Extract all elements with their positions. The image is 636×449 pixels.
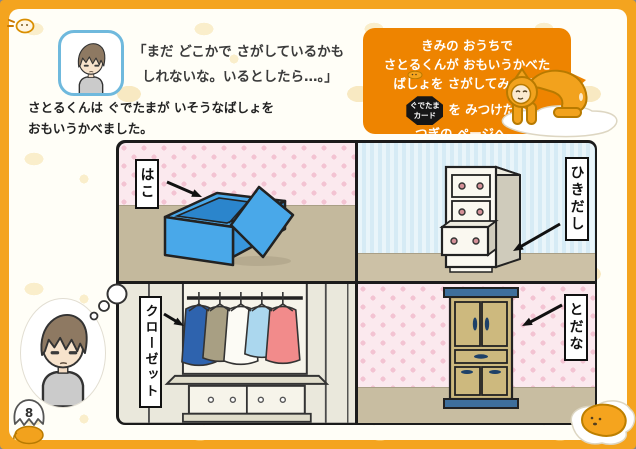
imagination-panel: はこ <box>116 140 597 425</box>
quadrant-drawers: ひきだし <box>358 143 595 282</box>
label-hikidashi: ひきだし <box>565 157 589 241</box>
chest-of-drawers-illustration <box>438 159 530 277</box>
costume-kid-illustration <box>486 48 634 148</box>
avatar-satoru <box>58 30 124 96</box>
narration-text: さとるくんは ぐでたまが いそうなばしょを おもいうかべました。 <box>28 97 338 140</box>
label-todana: とだな <box>564 294 588 361</box>
narration-line1: さとるくんは ぐでたまが いそうなばしょを <box>28 97 338 118</box>
arrow-icon <box>165 179 205 201</box>
gudetama-card-badge: ぐでたま カード <box>406 96 443 125</box>
speech-text: 「まだ どこかで さがしているかも しれないな。いるとしたら…。」 <box>133 40 373 90</box>
quadrant-closet: クローゼット <box>119 284 356 423</box>
label-hako: はこ <box>135 159 159 209</box>
label-closet: クローゼット <box>139 296 162 408</box>
speech-line1: 「まだ どこかで さがしているかも <box>133 40 373 65</box>
gudetama-icon <box>566 390 636 449</box>
quadrant-box: はこ <box>119 143 356 282</box>
boy-face-icon <box>61 37 121 96</box>
narration-line2: おもいうかべました。 <box>28 118 338 139</box>
arrow-icon <box>518 302 566 330</box>
page-number: 8 <box>25 406 33 420</box>
cupboard-illustration <box>442 286 520 410</box>
thought-dots-icon <box>86 282 130 324</box>
arrow-icon <box>508 219 566 257</box>
book-page: 「まだ どこかで さがしているかも しれないな。いるとしたら…。」 さとるくんは… <box>0 0 636 449</box>
arrow-icon <box>162 312 188 330</box>
badge-line1: ぐでたま <box>410 101 440 110</box>
egg-doodle-icon <box>6 12 36 36</box>
quadrant-cupboard: とだな <box>358 284 595 423</box>
speech-line2: しれないな。いるとしたら…。」 <box>133 65 373 90</box>
tiny-gudetama-icon <box>407 70 423 79</box>
page-number-mascot: 8 <box>5 397 53 445</box>
badge-line2: カード <box>414 111 437 120</box>
